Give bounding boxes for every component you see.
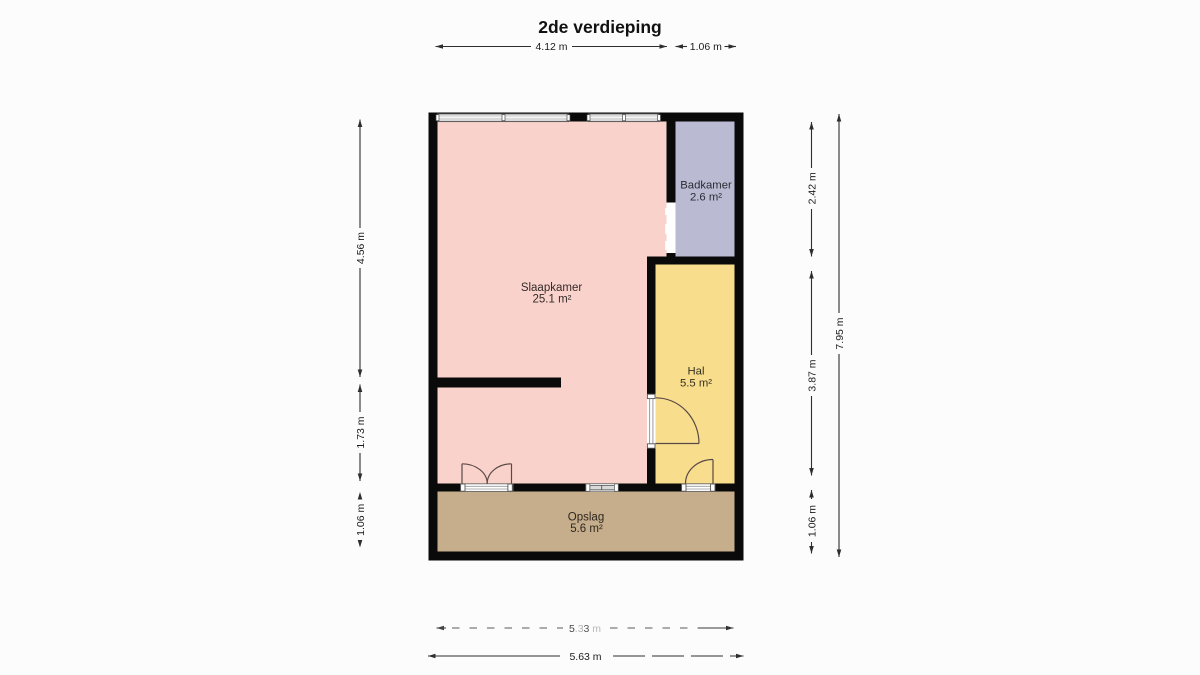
svg-text:4.12 m: 4.12 m	[535, 41, 567, 53]
svg-text:5.5 m²: 5.5 m²	[680, 378, 712, 390]
svg-text:5.33 m: 5.33 m	[569, 623, 601, 635]
svg-text:5.63 m: 5.63 m	[569, 651, 601, 663]
svg-text:Hal: Hal	[688, 366, 705, 378]
svg-text:1.06 m: 1.06 m	[355, 504, 367, 536]
svg-text:1.73 m: 1.73 m	[355, 416, 367, 448]
svg-text:7.95 m: 7.95 m	[834, 317, 846, 349]
svg-text:Opslag: Opslag	[568, 512, 604, 524]
svg-text:Slaapkamer: Slaapkamer	[521, 282, 583, 294]
svg-text:1.06 m: 1.06 m	[690, 41, 722, 53]
svg-text:Badkamer: Badkamer	[680, 180, 732, 192]
svg-text:2.6 m²: 2.6 m²	[690, 192, 722, 204]
svg-text:3.87 m: 3.87 m	[806, 359, 818, 391]
svg-text:2de verdieping: 2de verdieping	[538, 17, 662, 37]
svg-text:1.06 m: 1.06 m	[806, 505, 818, 537]
svg-text:4.56 m: 4.56 m	[355, 232, 367, 264]
svg-text:25.1 m²: 25.1 m²	[533, 294, 572, 306]
svg-text:2.42 m: 2.42 m	[806, 172, 818, 204]
svg-text:5.6 m²: 5.6 m²	[570, 523, 603, 535]
